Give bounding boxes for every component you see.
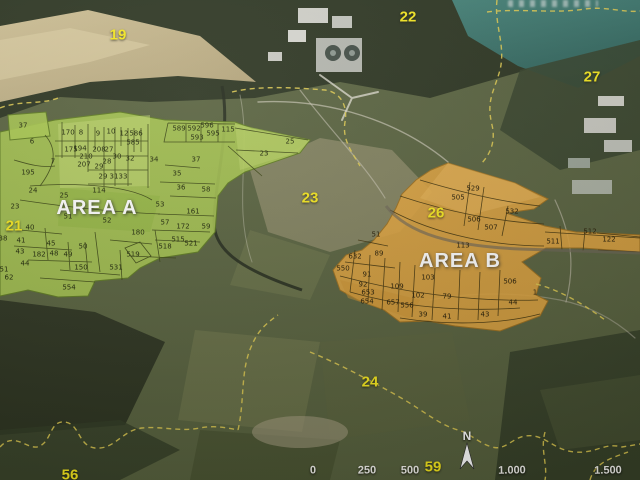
parcel-number-area-a: 23 <box>11 204 20 211</box>
parcel-number-area-a: 51 <box>0 267 8 274</box>
parcel-number-area-a: 24 <box>29 188 38 195</box>
parcel-number-area-b: 91 <box>363 272 372 279</box>
parcel-number-area-a: 194 <box>73 146 86 153</box>
parcel-number-area-b: 507 <box>484 225 497 232</box>
parcel-number-area-a: 59 <box>202 224 211 231</box>
zone-number: 22 <box>400 10 417 25</box>
parcel-number-area-b: 44 <box>509 300 518 307</box>
parcel-number-area-a: 207 <box>77 162 90 169</box>
north-label: N <box>463 430 472 442</box>
parcel-number-area-a: 7 <box>51 159 55 166</box>
parcel-number-area-a: 50 <box>79 244 88 251</box>
zone-number: 27 <box>584 70 601 85</box>
parcel-number-area-b: 632 <box>348 254 361 261</box>
parcel-number-area-a: 57 <box>161 220 170 227</box>
parcel-number-area-a: 9 <box>96 131 100 138</box>
parcel-number-area-a: 34 <box>150 157 159 164</box>
parcel-number-area-a: 8 <box>79 130 83 137</box>
parcel-number-area-a: 23 <box>260 151 269 158</box>
parcel-number-area-a: 586 <box>129 131 142 138</box>
parcel-number-area-a: 150 <box>74 265 87 272</box>
parcel-number-area-a: 6 <box>30 139 34 146</box>
parcel-number-area-a: 40 <box>26 225 35 232</box>
parcel-number-area-a: 114 <box>92 188 105 195</box>
scale-label: 0 <box>310 465 316 476</box>
parcel-number-area-b: 654 <box>360 299 373 306</box>
parcel-number-area-a: 30 <box>113 154 122 161</box>
parcel-number-area-a: 48 <box>50 251 59 258</box>
parcel-number-area-a: 49 <box>64 252 73 259</box>
parcel-number-area-a: 518 <box>158 244 171 251</box>
parcel-number-area-a: 180 <box>131 230 144 237</box>
parcel-number-area-a: 36 <box>177 185 186 192</box>
parcel-number-area-b: 511 <box>546 239 559 246</box>
parcel-number-area-a: 32 <box>126 156 135 163</box>
parcel-number-area-a: 29 <box>95 164 104 171</box>
parcel-number-area-b: 556 <box>400 303 413 310</box>
parcel-number-area-a: 53 <box>156 202 165 209</box>
cutoff-top-text <box>508 0 598 7</box>
parcel-number-area-a: 37 <box>192 157 201 164</box>
parcel-number-area-a: 554 <box>62 285 75 292</box>
parcel-number-area-a: 115 <box>221 127 234 134</box>
parcel-number-area-a: 62 <box>5 275 14 282</box>
parcel-number-area-a: 596 <box>200 123 213 130</box>
parcel-number-area-b: 506 <box>503 279 516 286</box>
parcel-number-area-b: 529 <box>466 186 479 193</box>
parcel-number-area-a: 45 <box>47 241 56 248</box>
parcel-number-area-a: 592 <box>187 126 200 133</box>
parcel-number-area-a: 33 <box>119 174 128 181</box>
parcel-number-area-a: 43 <box>16 249 25 256</box>
parcel-number-area-a: 44 <box>21 261 30 268</box>
parcel-number-area-b: 51 <box>372 232 381 239</box>
parcel-number-area-b: 657 <box>386 300 399 307</box>
parcel-number-area-a: 172 <box>176 224 189 231</box>
parcel-number-area-a: 37 <box>19 123 28 130</box>
parcel-number-area-a: 28 <box>103 159 112 166</box>
parcel-number-area-a: 595 <box>206 131 219 138</box>
parcel-number-area-b: 512 <box>583 229 596 236</box>
parcel-number-area-b: 113 <box>456 243 469 250</box>
parcel-number-area-a: 589 <box>172 126 185 133</box>
parcel-number-area-b: 122 <box>602 237 615 244</box>
labels-layer: 3761708910125865855895925965935951151751… <box>0 0 640 480</box>
parcel-number-area-a: 25 <box>286 139 295 146</box>
parcel-number-area-b: 89 <box>375 251 384 258</box>
zone-number: 59 <box>425 460 442 475</box>
zone-number: 21 <box>6 219 23 234</box>
parcel-number-area-b: 506 <box>467 217 480 224</box>
zone-number: 24 <box>362 375 379 390</box>
scale-label: 1.500 <box>594 465 622 476</box>
parcel-number-area-b: 41 <box>443 314 452 321</box>
parcel-number-area-a: 58 <box>202 187 211 194</box>
parcel-number-area-a: 531 <box>109 265 122 272</box>
map-photo: 3761708910125865855895925965935951151751… <box>0 0 640 480</box>
area-label: AREA A <box>56 198 137 218</box>
area-label: AREA B <box>419 251 501 271</box>
scale-label: 1.000 <box>498 465 526 476</box>
parcel-number-area-a: 170 <box>61 130 74 137</box>
zone-number: 26 <box>428 206 445 221</box>
parcel-number-area-a: 10 <box>107 129 116 136</box>
parcel-number-area-a: 38 <box>0 236 7 243</box>
parcel-number-area-a: 515 <box>171 237 184 244</box>
parcel-number-area-b: 103 <box>421 275 434 282</box>
parcel-number-area-a: 585 <box>126 140 139 147</box>
parcel-number-area-b: 39 <box>419 312 428 319</box>
parcel-number-area-a: 521 <box>184 241 197 248</box>
parcel-number-area-b: 1 <box>533 290 537 297</box>
parcel-number-area-b: 653 <box>361 290 374 297</box>
parcel-number-area-b: 550 <box>336 266 349 273</box>
zone-number: 56 <box>62 468 79 480</box>
parcel-number-area-a: 29 <box>99 174 108 181</box>
parcel-number-area-b: 505 <box>451 195 464 202</box>
parcel-number-area-a: 182 <box>32 252 45 259</box>
zone-number: 23 <box>302 191 319 206</box>
parcel-number-area-b: 43 <box>481 312 490 319</box>
parcel-number-area-b: 109 <box>390 284 403 291</box>
parcel-number-area-a: 210 <box>79 154 92 161</box>
scale-label: 500 <box>401 465 420 476</box>
parcel-number-area-a: 31 <box>110 174 119 181</box>
parcel-number-area-a: 35 <box>173 171 182 178</box>
parcel-number-area-a: 195 <box>21 170 34 177</box>
parcel-number-area-b: 92 <box>359 282 368 289</box>
parcel-number-area-b: 79 <box>443 294 452 301</box>
parcel-number-area-a: 12 <box>120 131 129 138</box>
zone-number: 19 <box>110 28 127 43</box>
parcel-number-area-a: 519 <box>126 252 139 259</box>
parcel-number-area-a: 593 <box>190 135 203 142</box>
parcel-number-area-b: 102 <box>411 293 424 300</box>
parcel-number-area-a: 41 <box>17 238 26 245</box>
scale-label: 250 <box>358 465 377 476</box>
parcel-number-area-b: 532 <box>505 209 518 216</box>
parcel-number-area-a: 161 <box>186 209 199 216</box>
